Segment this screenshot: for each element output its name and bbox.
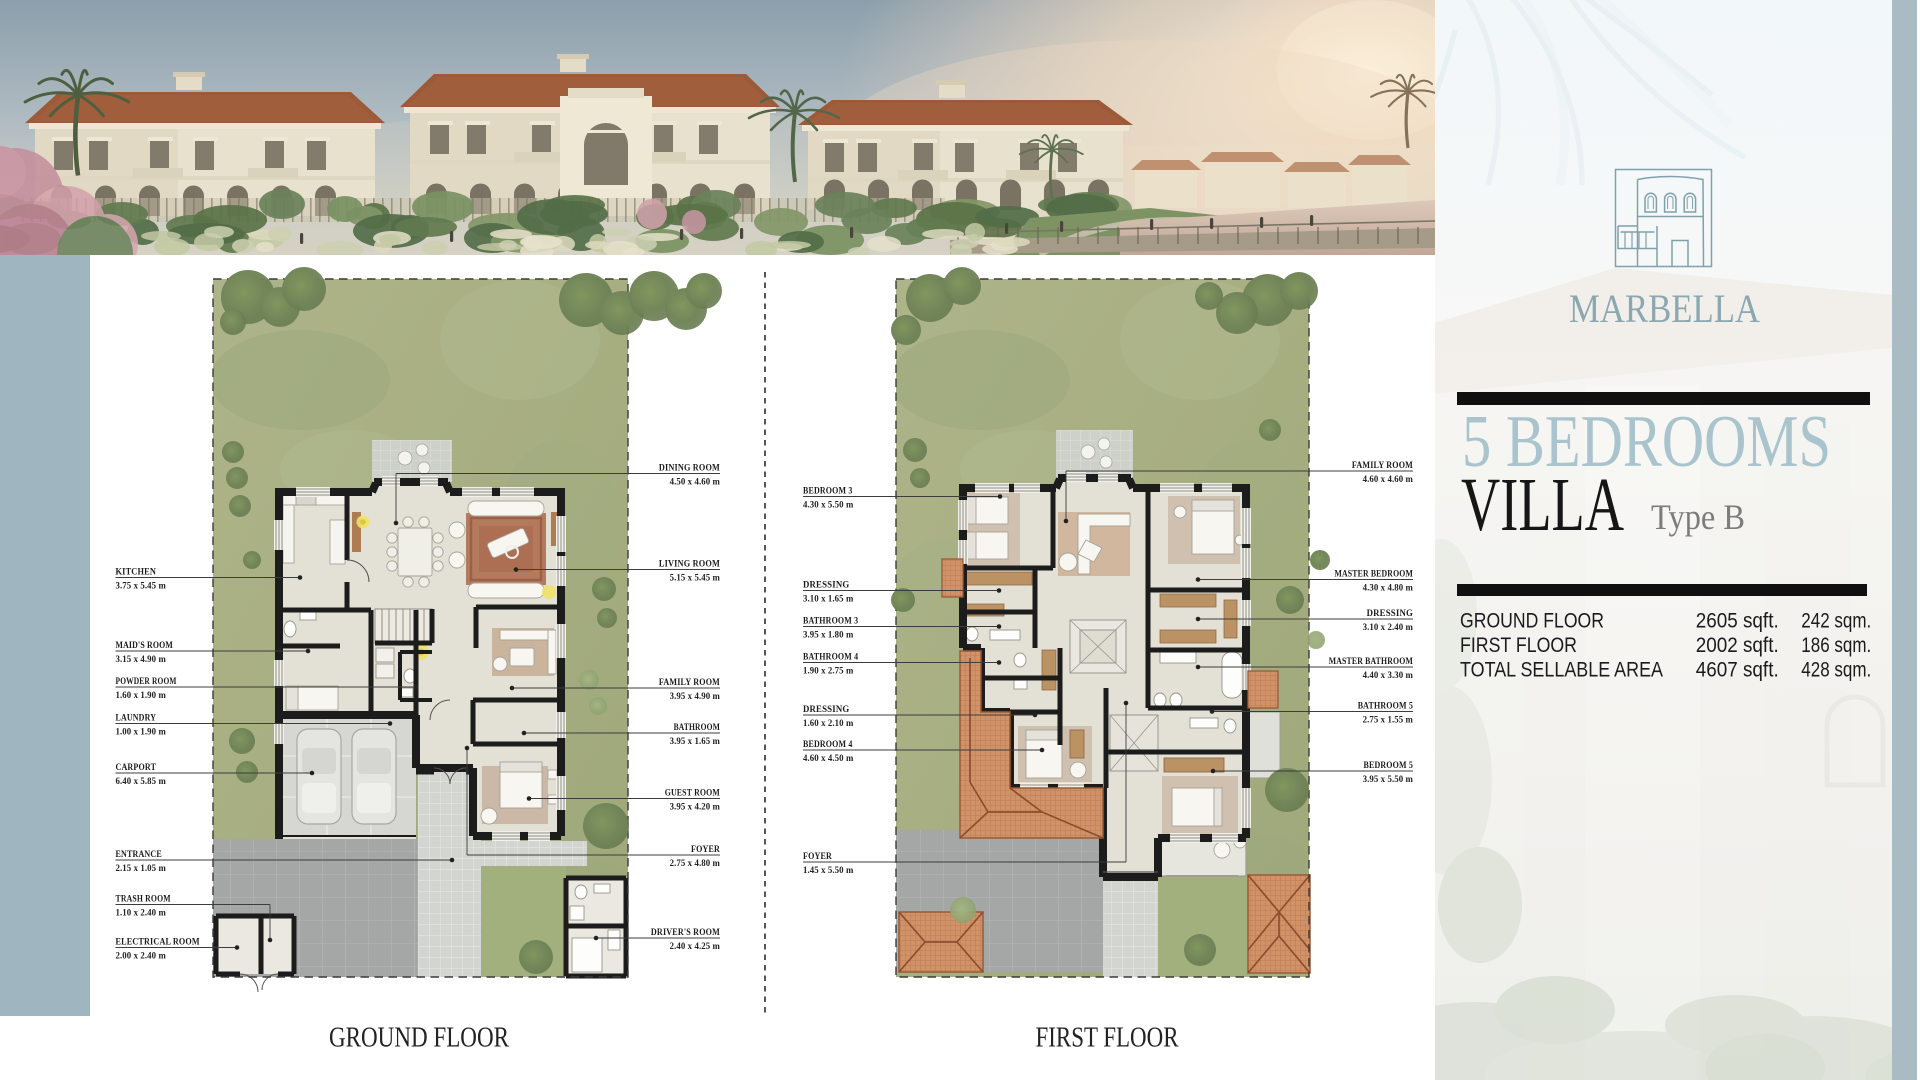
- svg-text:DRIVER'S ROOM: DRIVER'S ROOM: [651, 927, 720, 938]
- svg-text:4.50 x 4.60 m: 4.50 x 4.60 m: [670, 478, 720, 488]
- svg-text:2.75 x 4.80 m: 2.75 x 4.80 m: [670, 859, 720, 869]
- svg-text:3.15 x 4.90 m: 3.15 x 4.90 m: [116, 655, 166, 665]
- svg-text:VILLA: VILLA: [1461, 463, 1624, 547]
- svg-text:FAMILY ROOM: FAMILY ROOM: [659, 677, 720, 688]
- svg-text:1.10 x 2.40 m: 1.10 x 2.40 m: [116, 909, 166, 919]
- svg-text:1.60 x 1.90 m: 1.60 x 1.90 m: [116, 691, 166, 701]
- svg-text:428 sqm.: 428 sqm.: [1801, 659, 1871, 682]
- svg-text:FOYER: FOYER: [691, 844, 721, 855]
- svg-text:BEDROOM 3: BEDROOM 3: [803, 485, 853, 496]
- svg-text:BATHROOM: BATHROOM: [674, 722, 720, 733]
- svg-text:Type B: Type B: [1651, 497, 1745, 537]
- svg-text:TRASH ROOM: TRASH ROOM: [116, 893, 171, 904]
- svg-text:5.15 x 5.45 m: 5.15 x 5.45 m: [670, 574, 720, 584]
- svg-text:MARBELLA: MARBELLA: [1569, 286, 1760, 331]
- svg-text:1.90 x 2.75 m: 1.90 x 2.75 m: [803, 667, 853, 677]
- svg-text:186 sqm.: 186 sqm.: [1801, 634, 1871, 657]
- svg-text:BATHROOM 3: BATHROOM 3: [803, 615, 858, 626]
- svg-text:DRESSING: DRESSING: [803, 579, 850, 590]
- svg-text:3.95 x 4.90 m: 3.95 x 4.90 m: [670, 692, 720, 702]
- svg-text:3.10 x 1.65 m: 3.10 x 1.65 m: [803, 595, 853, 605]
- svg-text:1.00 x 1.90 m: 1.00 x 1.90 m: [116, 728, 166, 738]
- svg-text:LIVING ROOM: LIVING ROOM: [659, 558, 720, 569]
- svg-text:FIRST FLOOR: FIRST FLOOR: [1460, 634, 1577, 657]
- svg-text:BATHROOM 4: BATHROOM 4: [803, 651, 858, 662]
- svg-text:2.40 x 4.25 m: 2.40 x 4.25 m: [670, 942, 720, 952]
- svg-text:3.75 x 5.45 m: 3.75 x 5.45 m: [116, 582, 166, 592]
- svg-text:GROUND FLOOR: GROUND FLOOR: [329, 1022, 510, 1054]
- svg-text:BEDROOM 5: BEDROOM 5: [1364, 760, 1414, 771]
- svg-text:3.10 x 2.40 m: 3.10 x 2.40 m: [1363, 623, 1413, 633]
- svg-text:FAMILY ROOM: FAMILY ROOM: [1352, 460, 1413, 471]
- svg-text:MASTER BEDROOM: MASTER BEDROOM: [1335, 568, 1414, 579]
- svg-text:2.75 x 1.55 m: 2.75 x 1.55 m: [1363, 716, 1413, 726]
- svg-text:ELECTRICAL ROOM: ELECTRICAL ROOM: [116, 936, 200, 947]
- svg-text:BATHROOM 5: BATHROOM 5: [1358, 700, 1413, 711]
- svg-text:3.95 x 5.50 m: 3.95 x 5.50 m: [1363, 775, 1413, 785]
- svg-text:4.30 x 4.80 m: 4.30 x 4.80 m: [1363, 584, 1413, 594]
- svg-text:4.30 x 5.50 m: 4.30 x 5.50 m: [803, 501, 853, 511]
- svg-text:4.60 x 4.50 m: 4.60 x 4.50 m: [803, 754, 853, 764]
- svg-text:2.15 x 1.05 m: 2.15 x 1.05 m: [116, 864, 166, 874]
- svg-text:3.95 x 1.80 m: 3.95 x 1.80 m: [803, 631, 853, 641]
- svg-text:2.00 x 2.40 m: 2.00 x 2.40 m: [116, 952, 166, 962]
- svg-text:2002 sqft.: 2002 sqft.: [1696, 634, 1779, 657]
- svg-text:FIRST FLOOR: FIRST FLOOR: [1036, 1022, 1180, 1054]
- svg-text:3.95 x 1.65 m: 3.95 x 1.65 m: [670, 737, 720, 747]
- svg-text:3.95 x 4.20 m: 3.95 x 4.20 m: [670, 803, 720, 813]
- svg-text:6.40 x 5.85 m: 6.40 x 5.85 m: [116, 777, 166, 787]
- svg-text:DINING ROOM: DINING ROOM: [659, 462, 720, 473]
- svg-text:KITCHEN: KITCHEN: [116, 566, 157, 577]
- svg-text:DRESSING: DRESSING: [803, 704, 850, 715]
- svg-text:POWDER ROOM: POWDER ROOM: [116, 676, 177, 687]
- svg-text:CARPORT: CARPORT: [116, 762, 157, 773]
- svg-text:4607 sqft.: 4607 sqft.: [1696, 659, 1779, 682]
- svg-text:1.45 x 5.50 m: 1.45 x 5.50 m: [803, 866, 853, 876]
- svg-text:1.60 x 2.10 m: 1.60 x 2.10 m: [803, 719, 853, 729]
- svg-text:LAUNDRY: LAUNDRY: [116, 712, 157, 723]
- svg-text:242 sqm.: 242 sqm.: [1801, 610, 1871, 633]
- svg-text:MASTER BATHROOM: MASTER BATHROOM: [1329, 656, 1413, 667]
- svg-text:GUEST ROOM: GUEST ROOM: [665, 787, 720, 798]
- svg-text:DRESSING: DRESSING: [1367, 608, 1414, 619]
- svg-text:4.60 x 4.60 m: 4.60 x 4.60 m: [1363, 475, 1413, 485]
- svg-text:MAID'S ROOM: MAID'S ROOM: [116, 640, 174, 651]
- svg-text:FOYER: FOYER: [803, 851, 833, 862]
- svg-text:BEDROOM 4: BEDROOM 4: [803, 739, 853, 750]
- svg-text:GROUND FLOOR: GROUND FLOOR: [1460, 610, 1604, 633]
- svg-text:TOTAL SELLABLE AREA: TOTAL SELLABLE AREA: [1460, 659, 1663, 682]
- svg-text:4.40 x 3.30 m: 4.40 x 3.30 m: [1363, 671, 1413, 681]
- svg-text:ENTRANCE: ENTRANCE: [116, 849, 162, 860]
- svg-text:2605 sqft.: 2605 sqft.: [1696, 610, 1779, 633]
